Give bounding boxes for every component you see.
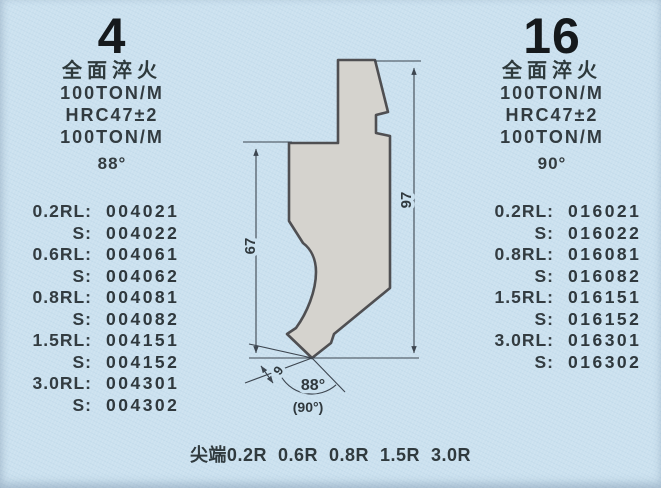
- punch-profile-drawing: 67 97 9 88° (90°): [0, 0, 661, 488]
- height-dim-67-label: 67: [242, 238, 259, 255]
- footer-caption: 尖端0.2R 0.6R 0.8R 1.5R 3.0R: [0, 441, 661, 467]
- height-dim-97-label: 97: [398, 192, 415, 209]
- tip-angle-value: 88°: [301, 377, 325, 394]
- punch-profile-outline: [287, 60, 390, 358]
- catalog-page: 4 全面淬火 100TON/M HRC47±2 100TON/M 88° 0.2…: [0, 0, 661, 488]
- tip-angle-alt-value: (90°): [293, 399, 324, 415]
- tip-dim-9-label: 9: [270, 363, 286, 378]
